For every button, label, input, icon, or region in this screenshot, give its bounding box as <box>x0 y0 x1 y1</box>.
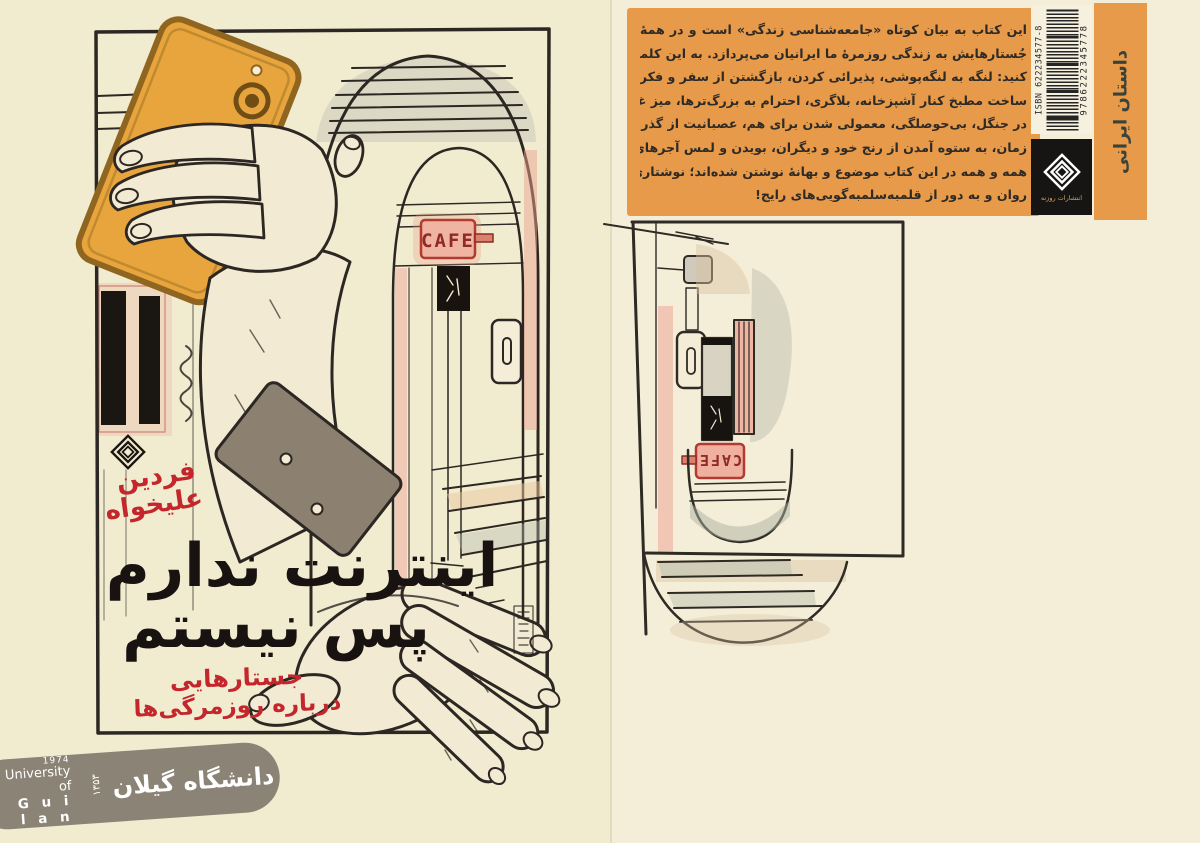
barcode-icon <box>1046 9 1078 130</box>
back-cover-illustration: CAFE <box>600 210 1020 650</box>
menu-board <box>702 396 732 440</box>
book-cover-scan: CAFE فردین علیخواه اینترنت ندارم پس نیست… <box>0 0 1200 843</box>
door-handle-plate <box>492 320 521 383</box>
publisher-name: انتشارات روزنه <box>1041 194 1082 202</box>
category-label: داستان ایرانی <box>1110 49 1131 173</box>
blurb-line: همه و همه در این کتاب موضوع و بهانهٔ نوش… <box>640 160 1027 184</box>
barcode-digits: 9786222345778 <box>1079 9 1089 130</box>
menu-board <box>437 266 470 311</box>
blurb-line: زمان، به ستوه آمدن از رنج خود و دیگران، … <box>640 136 1027 160</box>
cuff-stud-icon <box>281 454 292 465</box>
back-cover-blurb: این کتاب به بیان کوتاه «جامعه‌شناسی زندگ… <box>627 8 1040 216</box>
publisher-logo-back: انتشارات روزنه <box>1031 139 1092 215</box>
category-strip: داستان ایرانی <box>1094 3 1147 220</box>
university-name-fa: دانشگاه گیلان <box>112 762 275 801</box>
cafe-sign-text-flipped: CAFE <box>698 451 742 469</box>
university-year-fa: ۱۳۵۳ <box>91 781 103 796</box>
book-title: اینترنت ندارم پس نیستم <box>86 536 518 658</box>
title-line-1: اینترنت ندارم <box>86 536 518 597</box>
rowzaneh-diamond-icon <box>1044 154 1078 188</box>
blurb-line: این کتاب به بیان کوتاه «جامعه‌شناسی زندگ… <box>640 18 1027 42</box>
isbn-label: ISBN 622234577-8 <box>1034 9 1044 130</box>
title-line-2: پس نیستم <box>60 597 492 658</box>
blurb-line: روان و به دور از قلمبه‌سلمبه‌گویی‌های را… <box>640 183 1027 207</box>
blurb-line: ساخت مطبخ کنار آشپزخانه، بلاگری، احترام … <box>640 89 1027 113</box>
university-english-block: 1974 University of G u i l a n <box>4 755 74 829</box>
blurb-line: در جنگل، بی‌حوصلگی، معمولی شدن برای هم، … <box>640 112 1027 136</box>
guilan-emblem-icon <box>79 763 83 815</box>
university-name-line2: G u i l a n <box>7 794 75 829</box>
blurb-line: کنید: لنگه به لنگه‌پوشی، پذیرائی کردن، ب… <box>640 65 1027 89</box>
cuff-stud-icon <box>312 504 323 515</box>
door-handle-plate <box>677 332 705 388</box>
cafe-sign-text: CAFE <box>421 230 475 252</box>
book-subtitle: جستارهایی درباره روزمرگی‌ها <box>111 660 363 725</box>
isbn-barcode-panel: ISBN 622234577-8 9786222345778 <box>1031 5 1092 134</box>
blurb-line: جُستارهایش به زندگی روزمرهٔ ما ایرانیان … <box>640 42 1027 66</box>
